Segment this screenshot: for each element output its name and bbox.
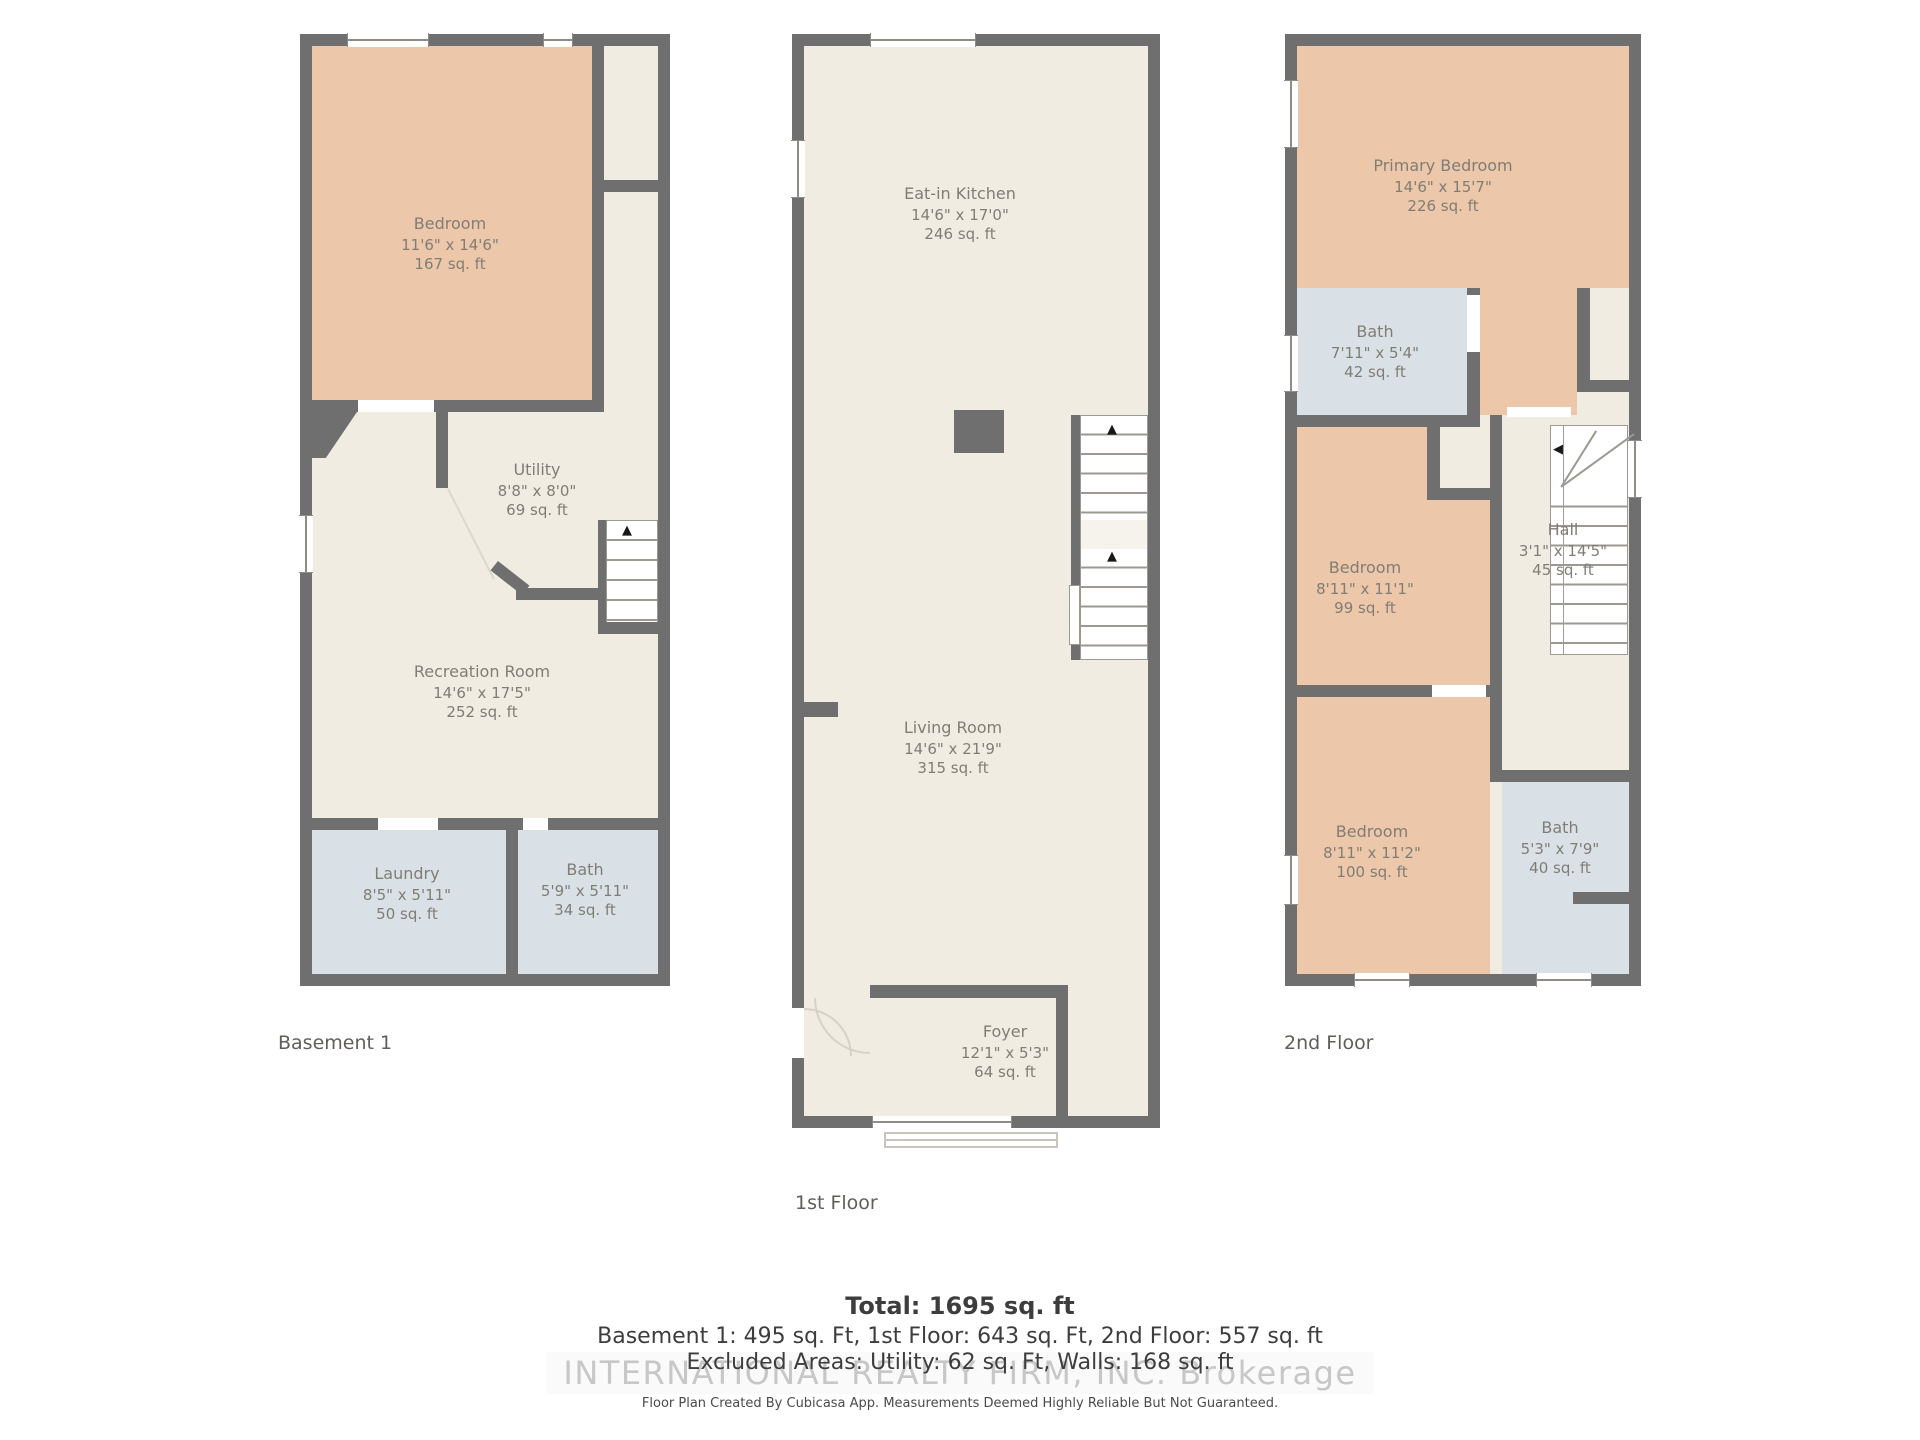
wall	[1297, 415, 1480, 427]
door-opening	[358, 400, 434, 412]
window	[791, 140, 805, 198]
basement-laundry-label: Laundry 8'5" x 5'11" 50 sq. ft	[363, 864, 451, 924]
stairs-up-arrow-icon: ▲	[1107, 423, 1117, 436]
hall-label: Hall 3'1" x 14'5" 45 sq. ft	[1519, 520, 1607, 580]
middle-bedroom-label: Bedroom 8'11" x 11'1" 99 sq. ft	[1316, 558, 1414, 618]
winder-line	[1561, 433, 1635, 487]
stair-landing	[1081, 520, 1147, 549]
window	[1284, 335, 1298, 392]
window	[870, 33, 976, 47]
window	[1536, 973, 1592, 987]
floor-breakdown-text: Basement 1: 495 sq. Ft, 1st Floor: 643 s…	[0, 1324, 1920, 1349]
door-opening	[523, 818, 548, 830]
wall	[604, 180, 658, 192]
primary-bedroom-extension	[1480, 288, 1577, 415]
wall	[506, 830, 518, 974]
hall-wall	[1490, 415, 1502, 782]
door-opening	[792, 1008, 804, 1058]
primary-bedroom-label: Primary Bedroom 14'6" x 15'7" 226 sq. ft	[1373, 156, 1512, 216]
basement-recreation-label: Recreation Room 14'6" x 17'5" 252 sq. ft	[414, 662, 550, 722]
foyer-label: Foyer 12'1" x 5'3" 64 sq. ft	[961, 1022, 1049, 1082]
basement-bath-label: Bath 5'9" x 5'11" 34 sq. ft	[541, 860, 629, 920]
window	[1628, 440, 1642, 498]
floor-plan-canvas: ▲ Bedroom 11'6" x 14'6" 167 sq. ft Utili…	[0, 0, 1920, 1440]
bottom-bedroom-label: Bedroom 8'11" x 11'2" 100 sq. ft	[1323, 822, 1421, 882]
first-floor-stairs	[1080, 415, 1148, 660]
wall	[592, 46, 604, 400]
door-opening	[1507, 407, 1571, 417]
closet-wall	[1427, 488, 1490, 500]
excluded-areas-text: Excluded Areas: Utility: 62 sq. Ft, Wall…	[0, 1350, 1920, 1375]
wall	[312, 818, 658, 830]
disclaimer-text: Floor Plan Created By Cubicasa App. Meas…	[0, 1396, 1920, 1411]
upper-bath-label: Bath 7'11" x 5'4" 42 sq. ft	[1331, 322, 1419, 382]
stair-railing	[1069, 585, 1080, 645]
window	[543, 33, 573, 47]
basement-bedroom-label: Bedroom 11'6" x 14'6" 167 sq. ft	[401, 214, 499, 274]
wall	[598, 622, 658, 634]
entry-door-window	[872, 1116, 1012, 1128]
stairs-up-arrow-icon: ▲	[622, 524, 632, 537]
stair-wall	[598, 520, 606, 634]
closet-wall	[1577, 288, 1590, 392]
door-opening	[378, 818, 438, 830]
wall-stub	[804, 702, 838, 717]
foyer-wall	[870, 985, 1068, 998]
window	[1354, 973, 1410, 987]
window	[347, 33, 429, 47]
living-room-label: Living Room 14'6" x 21'9" 315 sq. ft	[904, 718, 1002, 778]
lower-bath-label: Bath 5'3" x 7'9" 40 sq. ft	[1521, 818, 1600, 878]
kitchen-label: Eat-in Kitchen 14'6" x 17'0" 246 sq. ft	[904, 184, 1016, 244]
winder-line	[1560, 430, 1596, 487]
lower-bath-room	[1502, 782, 1629, 974]
bath-wall-stub	[1573, 892, 1629, 904]
first-floor-caption: 1st Floor	[795, 1192, 878, 1214]
kitchen-island	[954, 410, 1004, 453]
window	[299, 515, 313, 573]
total-area-text: Total: 1695 sq. ft	[0, 1292, 1920, 1320]
closet-wall	[1577, 380, 1629, 392]
stairs-left-arrow-icon: ◀	[1553, 443, 1563, 456]
utility-wall	[436, 412, 448, 488]
stair-treads	[1081, 549, 1147, 659]
window	[1284, 80, 1298, 148]
second-floor-caption: 2nd Floor	[1284, 1032, 1374, 1054]
basement-utility-label: Utility 8'8" x 8'0" 69 sq. ft	[498, 460, 577, 520]
basement-caption: Basement 1	[278, 1032, 392, 1054]
door-opening	[1432, 685, 1486, 697]
window	[1284, 855, 1298, 905]
basement-stairs	[606, 520, 658, 622]
closet-floor	[1440, 427, 1490, 488]
stair-treads	[607, 521, 657, 623]
porch-steps	[884, 1132, 1058, 1148]
door-opening	[1467, 295, 1480, 352]
foyer-wall	[1056, 985, 1068, 1116]
stairs-up-arrow-icon: ▲	[1107, 550, 1117, 563]
utility-wall	[516, 588, 604, 600]
wall	[1502, 770, 1629, 782]
